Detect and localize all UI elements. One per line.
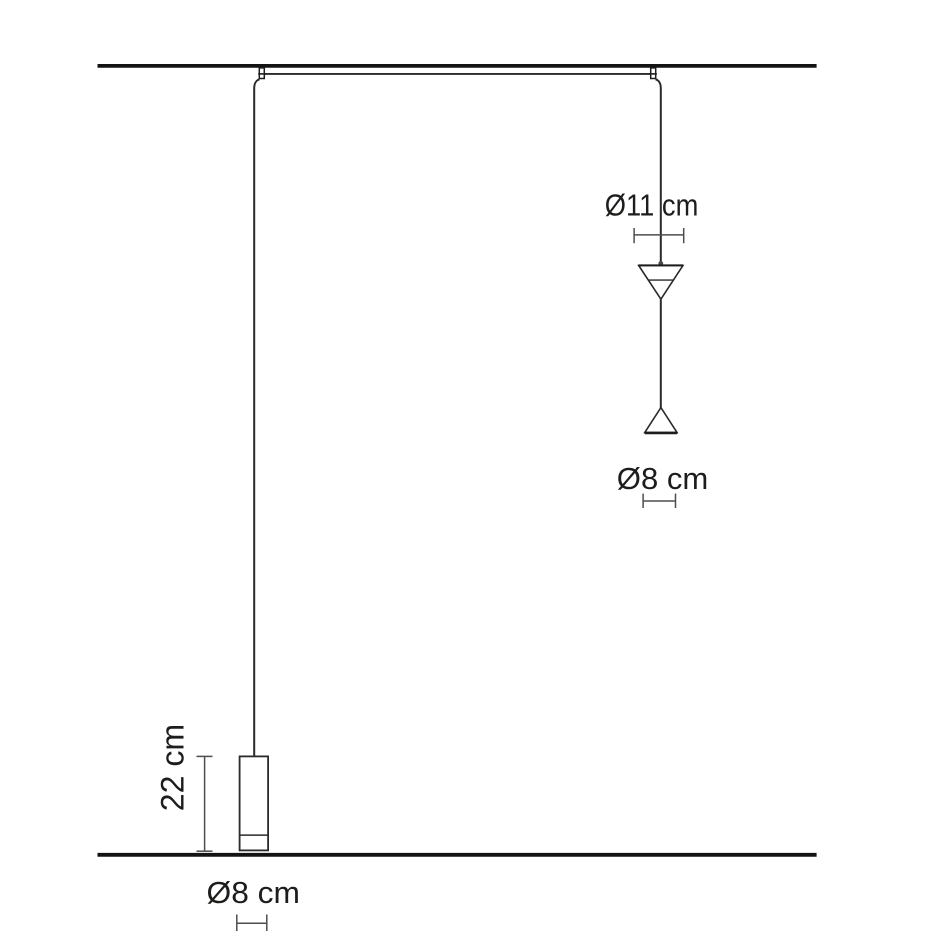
svg-text:Ø8 cm: Ø8 cm — [617, 461, 709, 496]
svg-text:Ø8 cm: Ø8 cm — [207, 875, 301, 910]
svg-text:22 cm: 22 cm — [154, 724, 190, 812]
svg-text:Ø11 cm: Ø11 cm — [605, 188, 699, 223]
